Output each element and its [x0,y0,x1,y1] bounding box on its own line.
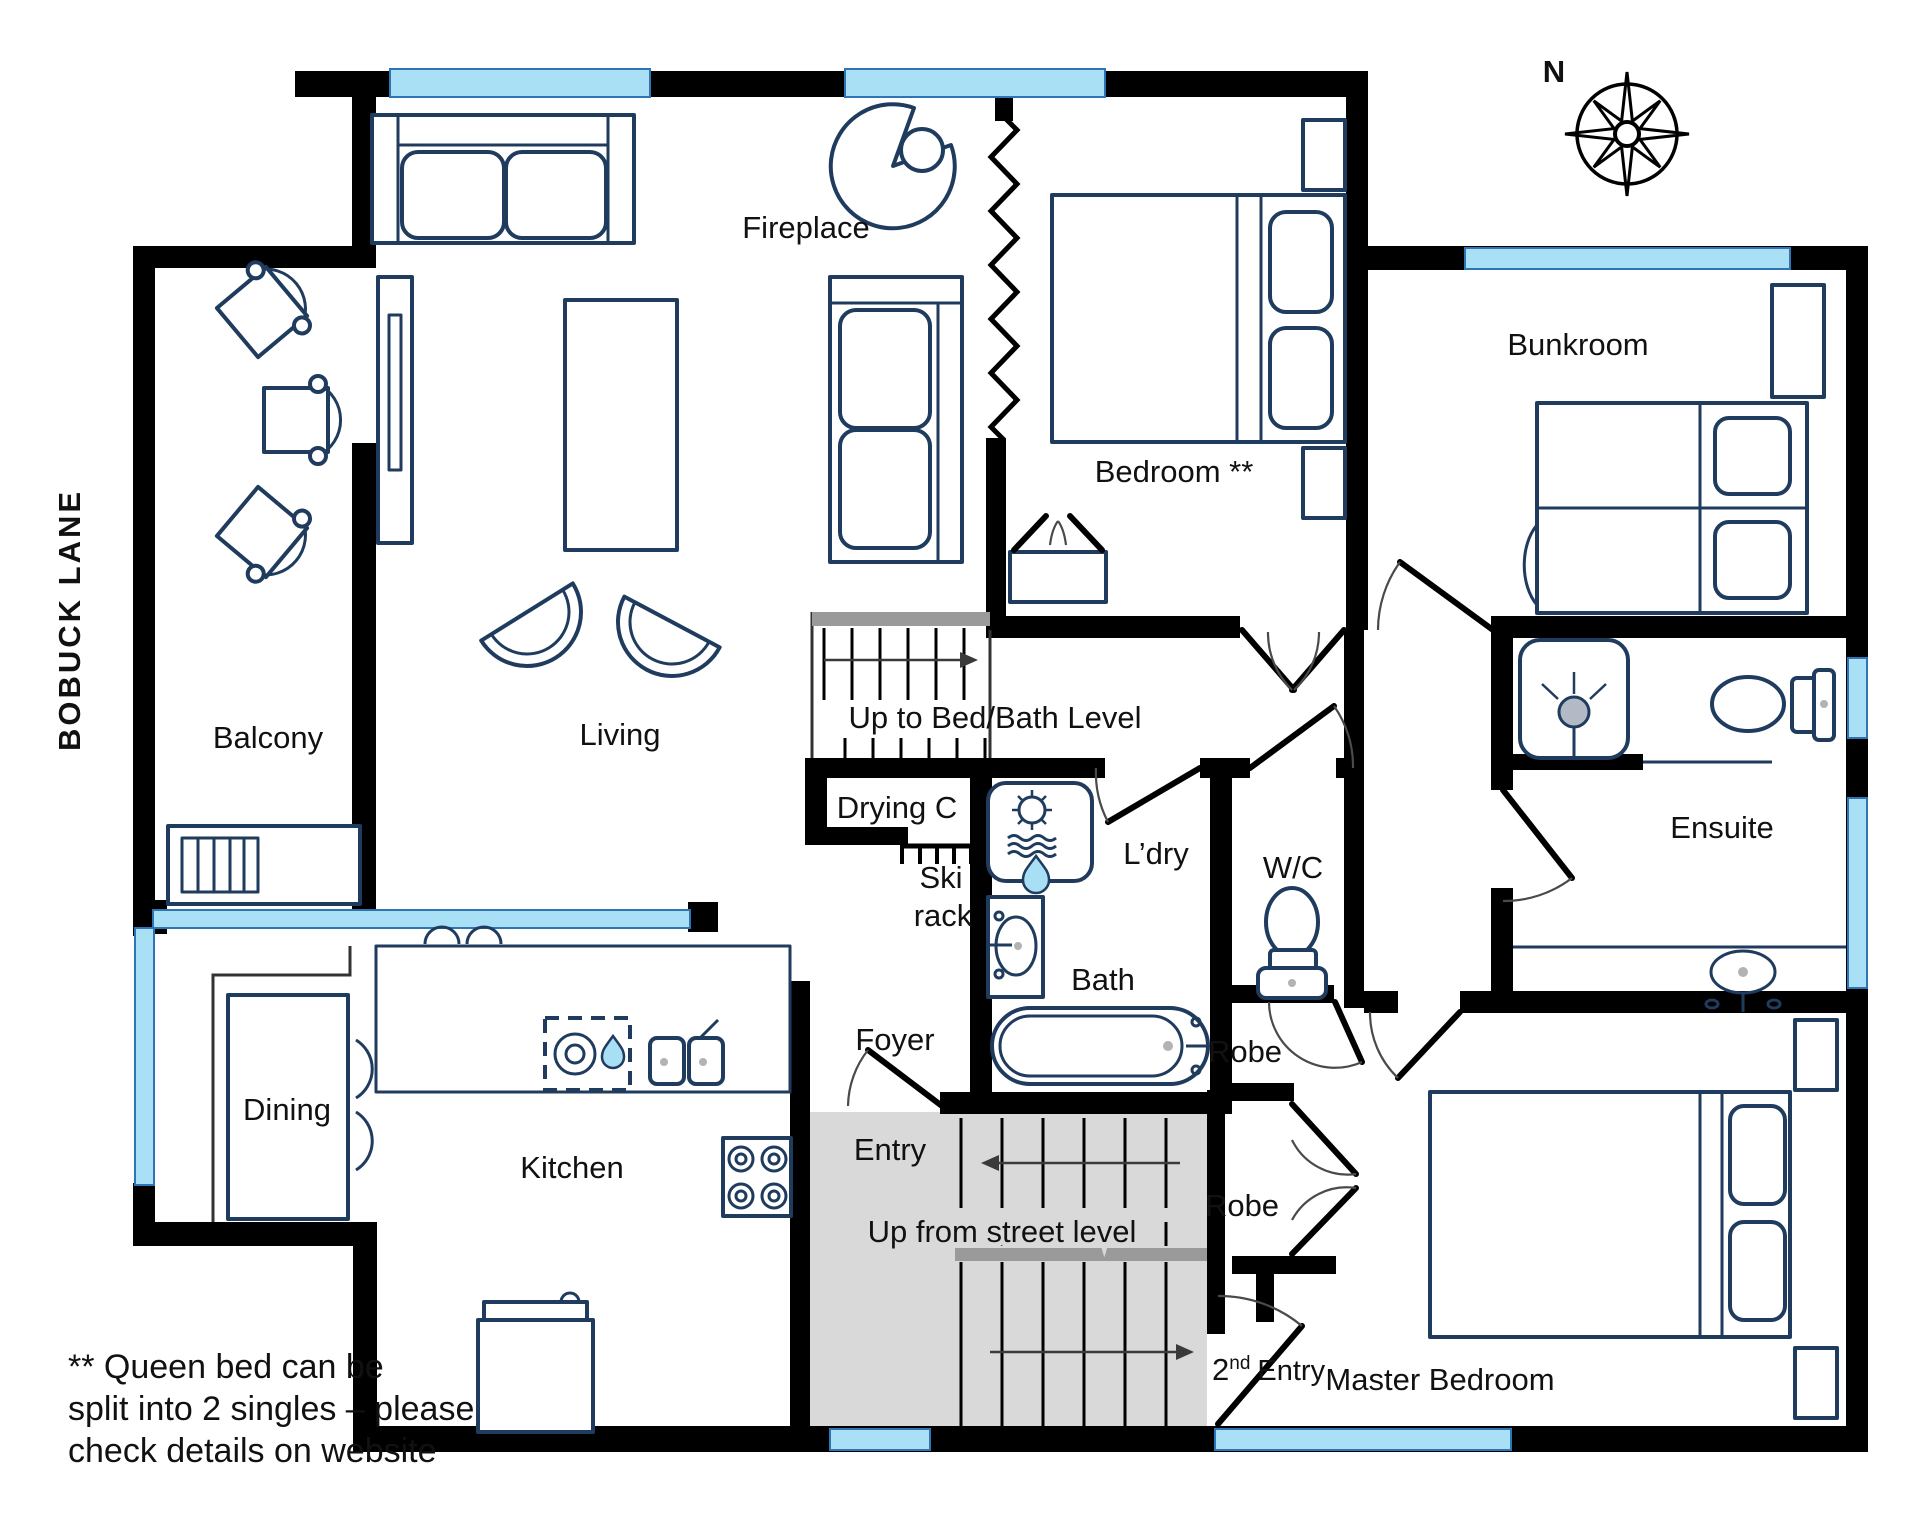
room-label-dining: Dining [243,1092,331,1127]
bathtub-icon [992,1008,1208,1084]
nightstand-icon [1795,1348,1837,1418]
sink-icon [650,1020,723,1084]
floorplan-drawing: Living Balcony Dining Kitchen Foyer Entr… [0,0,1920,1524]
stairs-label-lower: Up from street level [868,1214,1137,1249]
second-entry-num: 2 [1212,1352,1229,1387]
room-label-wc: W/C [1263,850,1323,885]
window [390,69,650,97]
second-entry-rest: Entry [1257,1355,1325,1387]
room-label-entry: Entry [854,1132,927,1167]
compass-north-label: N [1543,54,1565,89]
label-second-entry: 2ndEntry [1212,1352,1326,1387]
label-fireplace: Fireplace [742,210,870,245]
cooktop-icon [723,1138,791,1216]
coffee-table-icon [565,300,677,550]
bedroom-furniture [1010,120,1345,602]
toilet-icon-ensuite [1712,670,1834,740]
room-label-drying: Drying C [837,790,958,825]
note-line-1: ** Queen bed can be [68,1348,384,1386]
window [845,69,1105,97]
wardrobe-icon [1772,285,1824,397]
stove-icon [545,1018,630,1090]
stool-icon [425,927,459,944]
note-line-3: check details on website [68,1432,437,1470]
stool-icon [467,927,501,944]
balcony-chair-icon [264,376,341,464]
bunk-bed-icon [1524,403,1807,613]
floorplan-page: Living Balcony Dining Kitchen Foyer Entr… [0,0,1920,1524]
room-label-bath: Bath [1071,962,1135,997]
room-label-balcony: Balcony [213,720,324,755]
nightstand-icon [1303,120,1345,190]
window [153,910,690,928]
armchair-icon [481,583,601,686]
master-furniture [1430,1020,1837,1418]
bath-vanity-icon [988,897,1043,997]
dining-chair-icon [356,1112,372,1170]
room-label-laundry: L’dry [1123,836,1189,871]
room-label-living: Living [580,717,661,752]
fridge-icon [478,1293,593,1432]
nightstand-icon [1303,448,1345,518]
window [1848,658,1867,738]
room-label-kitchen: Kitchen [520,1150,623,1185]
balcony-bench-icon [168,826,360,904]
bedroom-bench-icon [1010,516,1106,602]
living-furniture [372,104,962,695]
sofa-two-seat-icon [830,277,962,562]
armchair-icon [599,597,720,695]
room-label-ensuite: Ensuite [1670,810,1773,845]
sofa-icon [372,115,634,243]
room-label-foyer: Foyer [855,1022,934,1057]
dining-chair-icon [356,1040,372,1098]
queen-bed-icon [1052,195,1345,442]
stairs-label-upper: Up to Bed/Bath Level [849,700,1142,735]
balcony-chair-icon [209,478,324,595]
room-label-robe-upper: Robe [1208,1034,1282,1069]
zigzag-wall [991,117,1017,440]
label-ski-line2: rack [914,898,973,933]
balcony-furniture [168,250,360,904]
tv-cabinet-icon [378,277,412,543]
window [135,928,154,1185]
toilet-icon-wc [1258,888,1326,998]
compass-rose-icon [1565,72,1689,196]
stairs-upper [812,612,990,760]
room-label-bedroom: Bedroom ** [1095,454,1254,489]
note-line-2: split into 2 singles – please [68,1390,474,1428]
washing-machine-icon [988,783,1092,893]
label-ski-line1: Ski [919,860,962,895]
window [1465,248,1790,269]
room-label-bunkroom: Bunkroom [1507,327,1648,362]
window [830,1429,930,1450]
bath-furniture [988,783,1208,1084]
room-label-master: Master Bedroom [1325,1362,1554,1397]
nightstand-icon [1795,1020,1837,1090]
window [1848,798,1867,988]
window [1215,1429,1511,1450]
second-entry-sup: nd [1229,1353,1250,1374]
room-label-robe-lower: Robe [1205,1188,1279,1223]
master-bed-icon [1430,1092,1790,1337]
street-name-label: BOBUCK LANE [52,489,87,751]
